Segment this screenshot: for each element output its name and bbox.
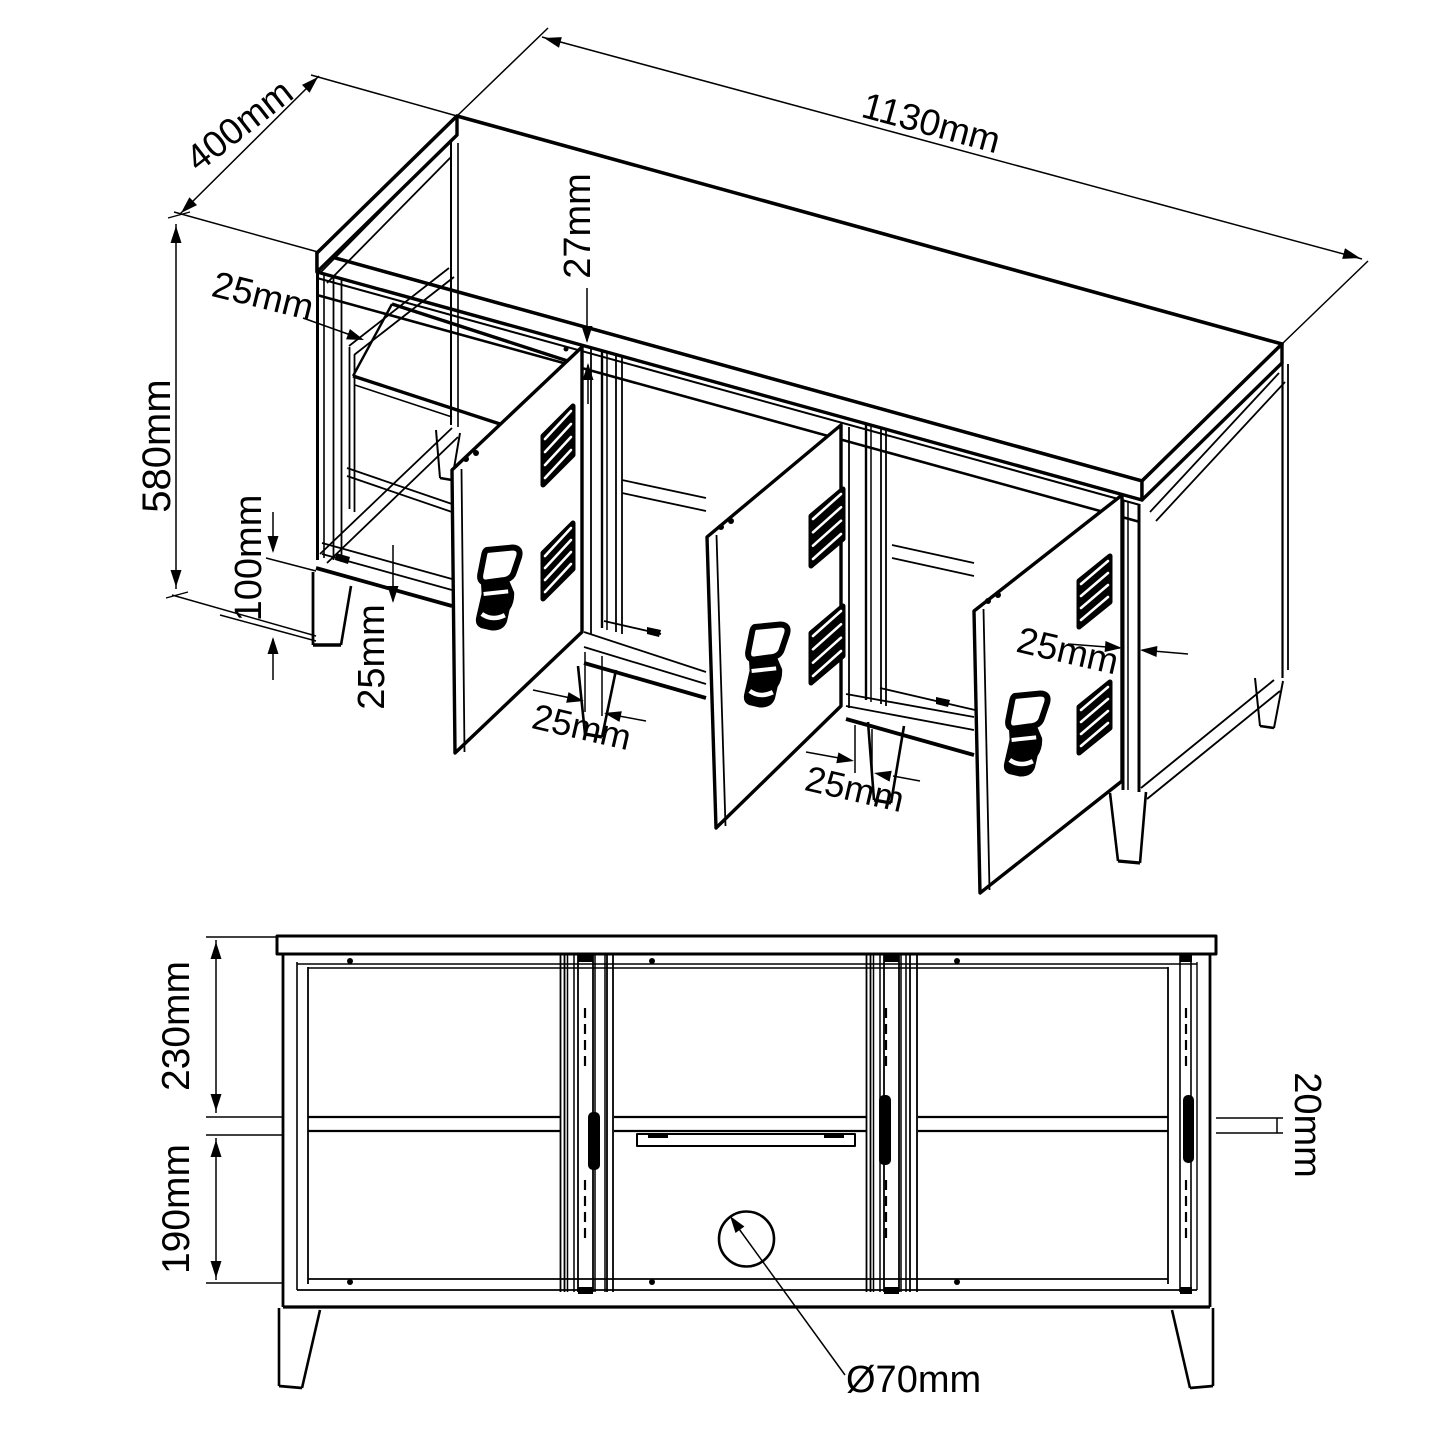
svg-text:27mm: 27mm <box>557 173 599 279</box>
svg-text:400mm: 400mm <box>178 71 300 179</box>
svg-text:20mm: 20mm <box>1286 1072 1328 1178</box>
svg-text:230mm: 230mm <box>155 961 198 1091</box>
svg-text:25mm: 25mm <box>801 758 908 820</box>
svg-text:25mm: 25mm <box>528 696 635 758</box>
svg-text:25mm: 25mm <box>208 264 318 329</box>
svg-text:580mm: 580mm <box>135 379 179 512</box>
svg-text:Ø70mm: Ø70mm <box>846 1359 981 1401</box>
svg-text:190mm: 190mm <box>155 1144 198 1274</box>
svg-text:1130mm: 1130mm <box>858 85 1005 162</box>
svg-text:25mm: 25mm <box>351 604 393 710</box>
svg-text:100mm: 100mm <box>228 495 270 622</box>
